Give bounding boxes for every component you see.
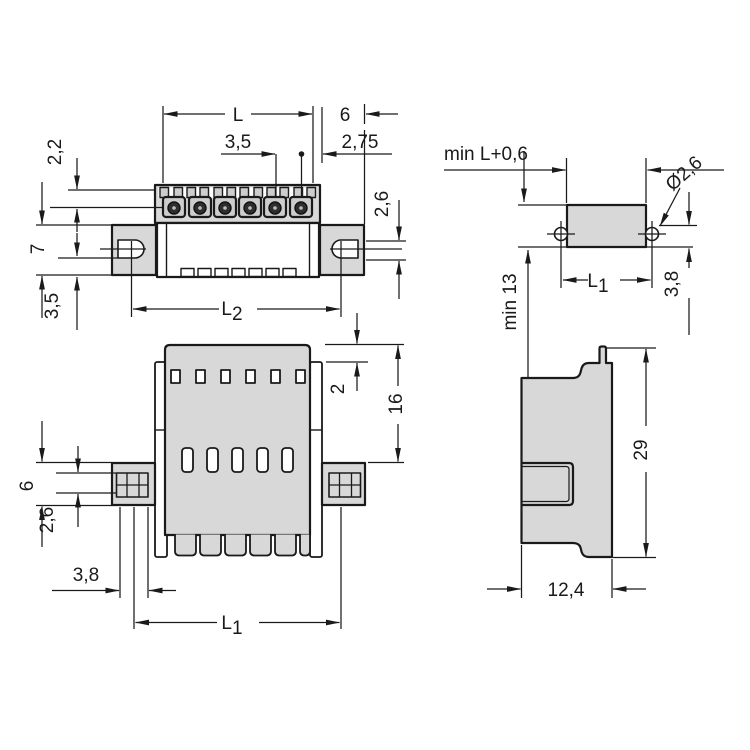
dim-hole-dia: Ø2,6 bbox=[662, 152, 707, 195]
dim-back-pin-offset: 3,8 bbox=[73, 565, 99, 586]
dim-L: L bbox=[233, 105, 244, 126]
dim-total-height: 29 bbox=[631, 439, 652, 460]
front-housing-feet bbox=[181, 269, 296, 277]
back-view bbox=[112, 345, 365, 557]
side-body bbox=[522, 347, 613, 558]
connector-dimension-drawing: L 3,5 2,75 6 2,6 bbox=[0, 0, 750, 750]
dim-back-flange-height: 6 bbox=[17, 481, 38, 492]
dim-hole-offset: 3,8 bbox=[662, 271, 683, 297]
dim-rail-offset: 2 bbox=[328, 384, 349, 395]
dim-depth: 12,4 bbox=[548, 580, 585, 601]
side-view bbox=[522, 347, 613, 558]
back-rail-right bbox=[310, 362, 322, 557]
dim-pin-drop: 2,6 bbox=[372, 191, 393, 217]
back-body bbox=[165, 345, 310, 535]
front-view bbox=[100, 185, 402, 317]
dim-edge-offset: 2,75 bbox=[342, 132, 379, 153]
top-body bbox=[567, 205, 646, 247]
dim-min-depth: min 13 bbox=[500, 273, 521, 330]
back-teeth bbox=[175, 535, 310, 556]
dim-comb-height: 2,2 bbox=[45, 139, 66, 165]
technical-drawing-page: L 3,5 2,75 6 2,6 bbox=[0, 0, 750, 750]
dim-flange-height: 7 bbox=[28, 244, 49, 255]
dim-foot-offset: 3,5 bbox=[42, 293, 63, 319]
dim-L2: L2 bbox=[221, 299, 242, 325]
dim-min-length: min L+0,6 bbox=[444, 144, 528, 165]
dim-back-clamp-height: 2,6 bbox=[37, 507, 58, 533]
dim-body-height: 16 bbox=[386, 393, 407, 414]
dim-top-L1: L1 bbox=[587, 271, 608, 297]
dim-pitch: 3,5 bbox=[225, 132, 251, 153]
dim-side-gap: 6 bbox=[340, 105, 351, 126]
dim-back-L1: L1 bbox=[221, 613, 242, 639]
